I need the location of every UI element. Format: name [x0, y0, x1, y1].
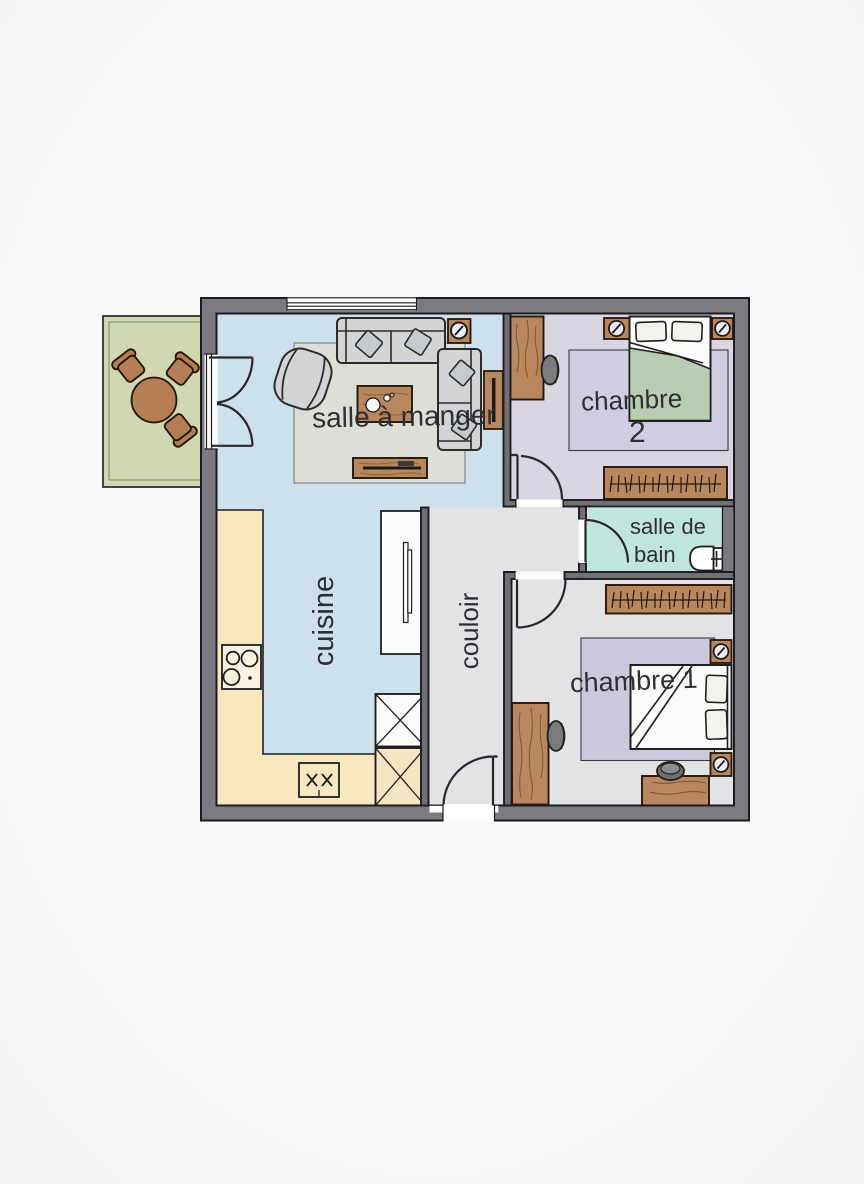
svg-text:2: 2 [629, 416, 646, 449]
svg-text:salle de: salle de [630, 514, 706, 539]
svg-text:cuisine: cuisine [308, 576, 340, 666]
svg-text:bain: bain [634, 542, 676, 567]
svg-text:chambre 1: chambre 1 [570, 664, 699, 698]
svg-text:chambre: chambre [581, 383, 683, 417]
svg-text:salle à manger: salle à manger [312, 399, 496, 433]
svg-text:couloir: couloir [454, 592, 484, 669]
